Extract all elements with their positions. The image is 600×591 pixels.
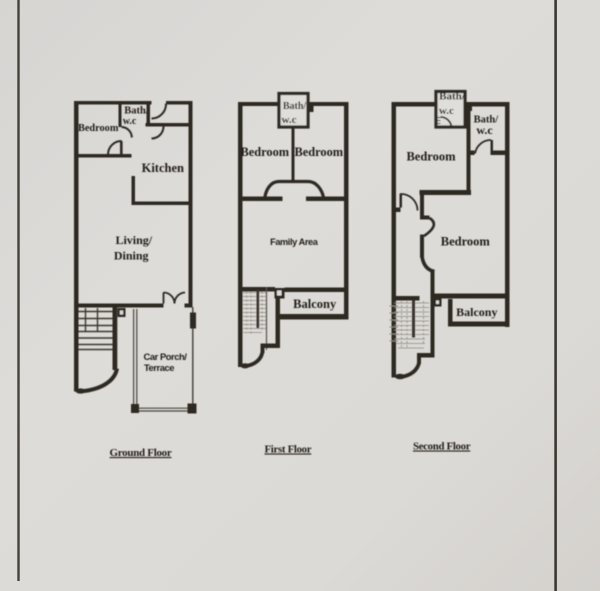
svg-text:Terrace: Terrace bbox=[144, 362, 174, 373]
svg-text:Ground Floor: Ground Floor bbox=[110, 447, 172, 459]
svg-text:First Floor: First Floor bbox=[265, 444, 312, 456]
svg-text:Living/: Living/ bbox=[115, 233, 152, 247]
svg-text:Kitchen: Kitchen bbox=[142, 161, 184, 175]
svg-text:w.c: w.c bbox=[123, 116, 137, 127]
svg-text:w.c: w.c bbox=[282, 114, 297, 126]
svg-text:Bath/: Bath/ bbox=[283, 101, 307, 112]
svg-text:Dining: Dining bbox=[114, 248, 149, 262]
svg-text:Bedroom: Bedroom bbox=[406, 150, 456, 164]
svg-text:Bedroom: Bedroom bbox=[78, 123, 119, 134]
svg-text:w.c: w.c bbox=[439, 105, 454, 117]
svg-text:Car Porch/: Car Porch/ bbox=[144, 351, 188, 362]
svg-text:Balcony: Balcony bbox=[456, 305, 497, 319]
svg-text:Bedroom: Bedroom bbox=[240, 145, 289, 159]
svg-text:Family Area: Family Area bbox=[270, 237, 319, 247]
svg-text:Bedroom: Bedroom bbox=[294, 145, 343, 159]
svg-text:Bath/: Bath/ bbox=[439, 91, 466, 103]
svg-text:Second Floor: Second Floor bbox=[413, 441, 471, 453]
svg-text:w.c: w.c bbox=[476, 123, 493, 137]
svg-text:Bedroom: Bedroom bbox=[441, 235, 491, 249]
svg-text:Bath/: Bath/ bbox=[124, 106, 150, 117]
svg-text:Balcony: Balcony bbox=[293, 297, 337, 311]
